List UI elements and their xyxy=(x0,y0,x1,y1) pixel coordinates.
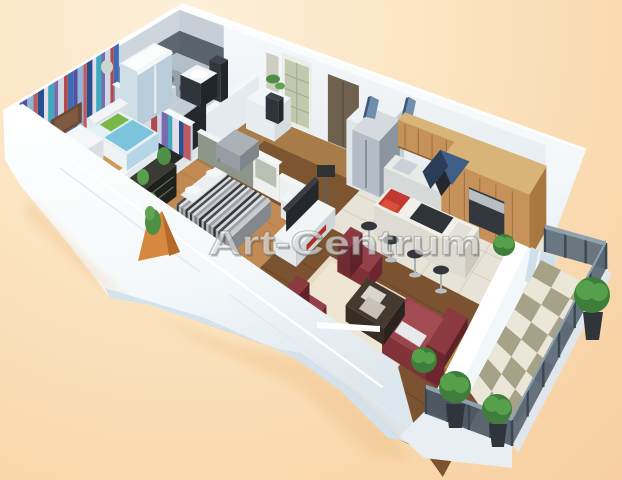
svg-text:Art-Centrum: Art-Centrum xyxy=(208,225,481,263)
